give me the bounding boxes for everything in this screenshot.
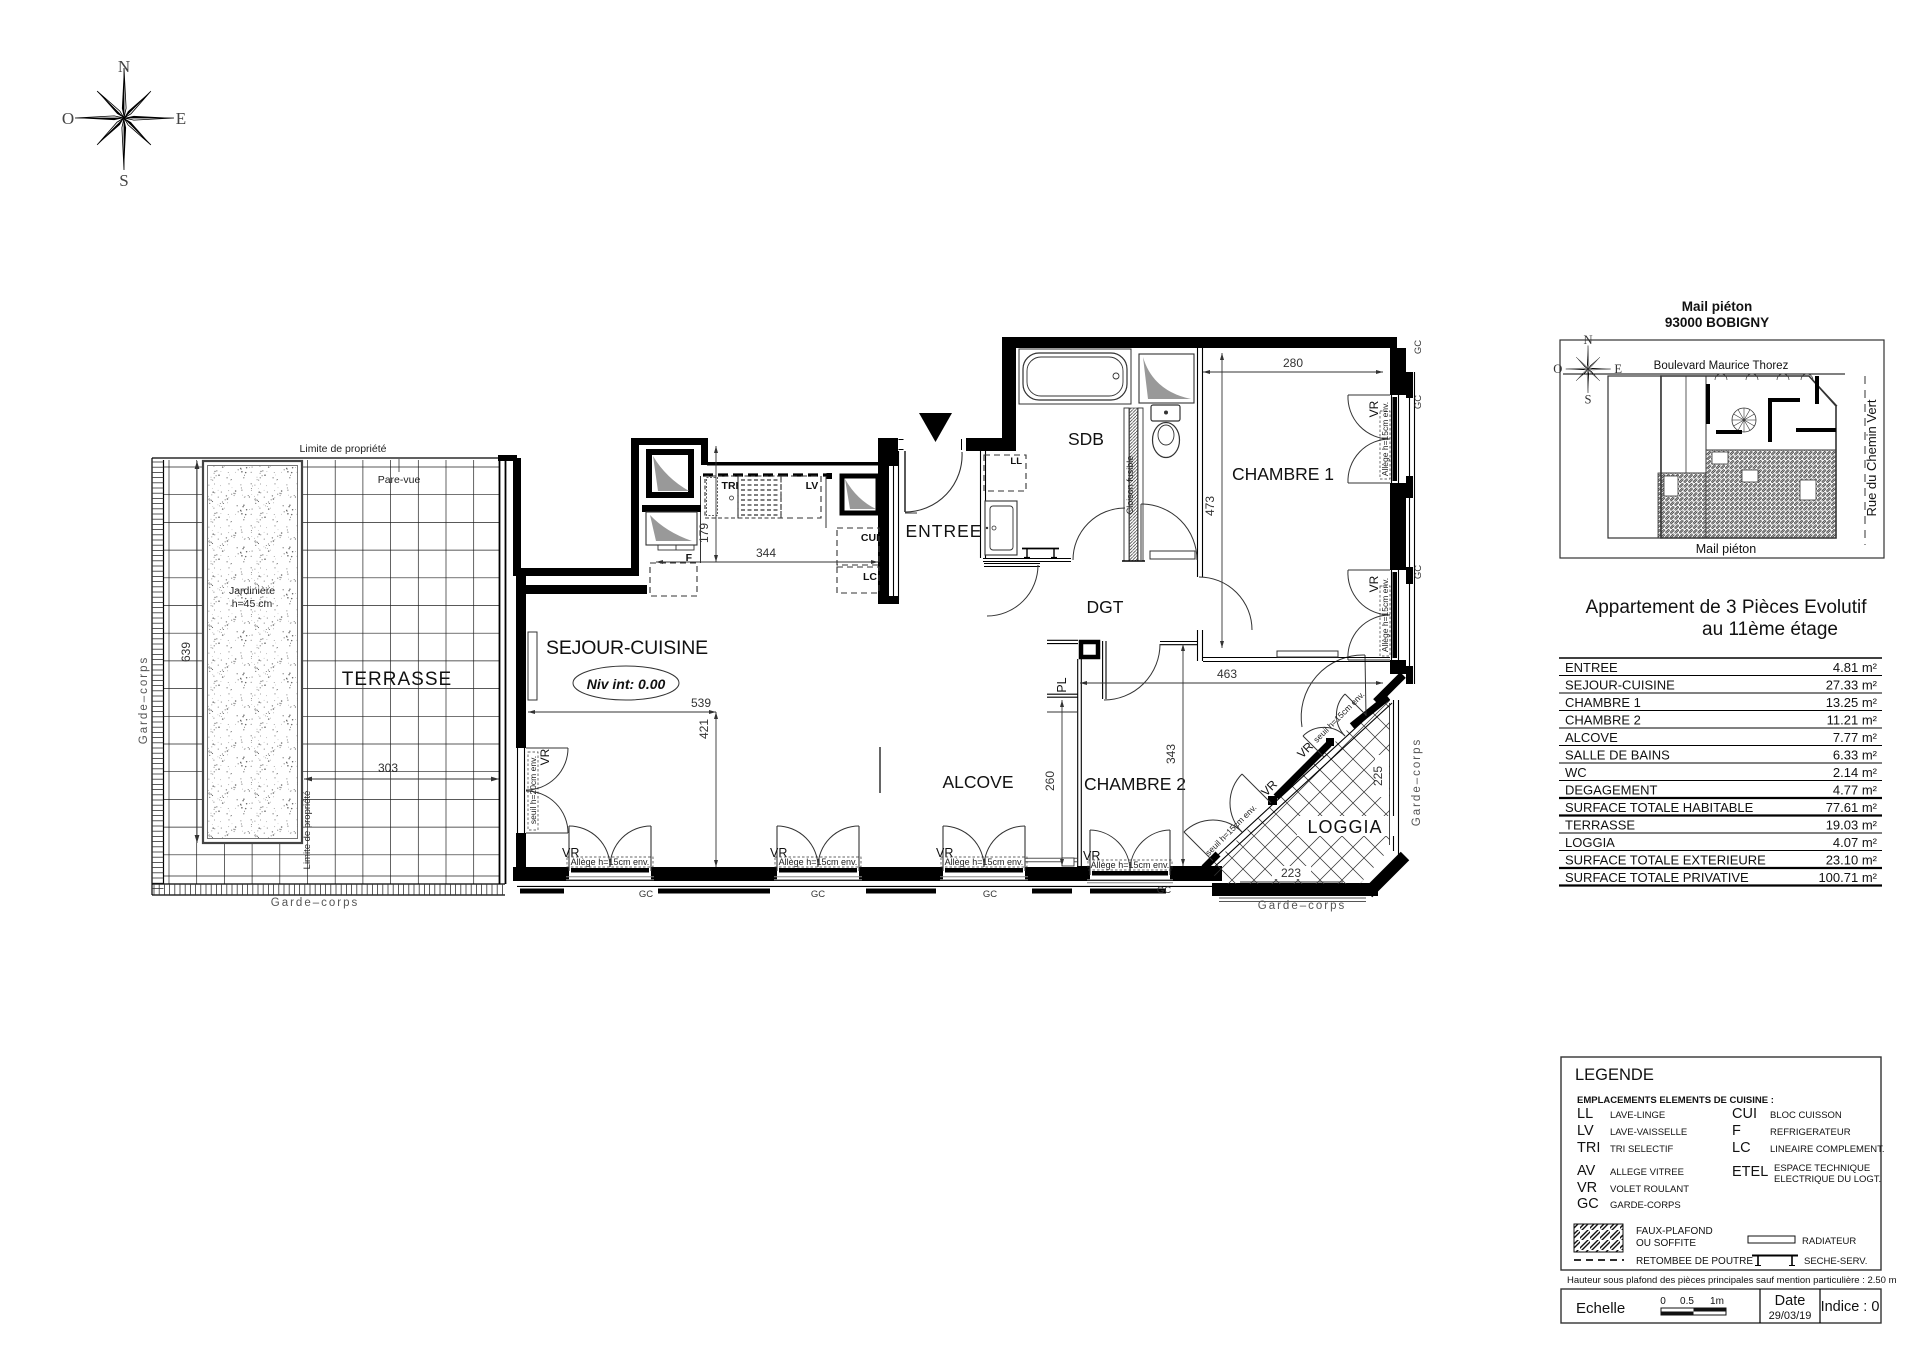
- svg-text:SURFACE TOTALE EXTERIEURE: SURFACE TOTALE EXTERIEURE: [1565, 852, 1766, 867]
- svg-text:421: 421: [697, 719, 711, 739]
- svg-text:11.21 m²: 11.21 m²: [1827, 712, 1878, 727]
- svg-text:E: E: [176, 109, 186, 128]
- svg-text:Echelle: Echelle: [1576, 1300, 1625, 1317]
- svg-text:ETEL: ETEL: [1732, 1164, 1768, 1180]
- svg-text:343: 343: [1164, 744, 1178, 764]
- svg-text:WC: WC: [1565, 765, 1587, 780]
- svg-text:27.33 m²: 27.33 m²: [1826, 677, 1878, 692]
- svg-text:0: 0: [1660, 1296, 1666, 1307]
- svg-text:LINEAIRE COMPLEMENT.: LINEAIRE COMPLEMENT.: [1770, 1144, 1885, 1155]
- svg-text:SEJOUR-CUISINE: SEJOUR-CUISINE: [546, 637, 708, 659]
- svg-text:PL: PL: [1055, 677, 1069, 692]
- svg-text:LL: LL: [1577, 1106, 1593, 1122]
- svg-text:GC: GC: [983, 889, 997, 900]
- svg-text:GC: GC: [1577, 1196, 1599, 1212]
- svg-text:Hauteur sous plafond des pièce: Hauteur sous plafond des pièces principa…: [1567, 1275, 1897, 1286]
- svg-text:OU SOFFITE: OU SOFFITE: [1636, 1238, 1696, 1249]
- svg-text:h=45 cm: h=45 cm: [232, 598, 273, 610]
- svg-text:29/03/19: 29/03/19: [1769, 1310, 1812, 1322]
- svg-text:Boulevard Maurice Thorez: Boulevard Maurice Thorez: [1654, 360, 1789, 372]
- svg-text:SDB: SDB: [1068, 429, 1104, 449]
- svg-text:au 11ème étage: au 11ème étage: [1702, 619, 1838, 640]
- svg-text:ESPACE TECHNIQUE: ESPACE TECHNIQUE: [1774, 1163, 1870, 1174]
- svg-text:223: 223: [1281, 866, 1301, 880]
- svg-text:260: 260: [1043, 771, 1057, 791]
- svg-text:2.14 m²: 2.14 m²: [1833, 765, 1878, 780]
- svg-text:Mail piéton: Mail piéton: [1696, 542, 1756, 556]
- svg-text:ENTREE: ENTREE: [1565, 660, 1618, 675]
- svg-text:473: 473: [1203, 496, 1217, 516]
- svg-text:TERRASSE: TERRASSE: [1565, 817, 1635, 832]
- svg-text:Limite de propriété: Limite de propriété: [302, 791, 313, 870]
- svg-text:13.25 m²: 13.25 m²: [1826, 695, 1878, 710]
- svg-text:TRI SELECTIF: TRI SELECTIF: [1610, 1144, 1674, 1155]
- svg-text:Allège h=15cm env.: Allège h=15cm env.: [779, 857, 858, 867]
- svg-text:S: S: [1584, 392, 1591, 406]
- svg-text:Allège h=15cm env.: Allège h=15cm env.: [1091, 860, 1170, 870]
- svg-text:VR: VR: [1577, 1180, 1597, 1196]
- svg-text:SECHE-SERV.: SECHE-SERV.: [1804, 1256, 1867, 1267]
- svg-text:VR: VR: [1367, 400, 1381, 417]
- svg-text:Cloison fusible: Cloison fusible: [1125, 456, 1135, 515]
- svg-text:Garde–corps: Garde–corps: [138, 656, 150, 744]
- svg-text:Garde–corps: Garde–corps: [1258, 900, 1346, 912]
- svg-text:ELECTRIQUE DU LOGT.: ELECTRIQUE DU LOGT.: [1774, 1174, 1881, 1185]
- svg-text:225: 225: [1371, 766, 1385, 786]
- svg-text:4.81 m²: 4.81 m²: [1833, 660, 1878, 675]
- svg-text:VR: VR: [538, 748, 552, 765]
- svg-text:O: O: [1553, 362, 1562, 376]
- svg-text:Rue du Chemin Vert: Rue du Chemin Vert: [1864, 399, 1879, 516]
- svg-text:77.61 m²: 77.61 m²: [1826, 800, 1878, 815]
- svg-text:N: N: [1583, 333, 1592, 347]
- svg-text:639: 639: [179, 642, 193, 662]
- svg-text:S: S: [119, 171, 128, 190]
- svg-text:4.07 m²: 4.07 m²: [1833, 835, 1878, 850]
- svg-text:O: O: [62, 109, 74, 128]
- svg-text:LEGENDE: LEGENDE: [1575, 1066, 1654, 1084]
- svg-text:seuil h=20cm env.: seuil h=20cm env.: [528, 756, 538, 824]
- svg-text:GC: GC: [1157, 885, 1171, 896]
- svg-text:303: 303: [378, 761, 398, 775]
- svg-text:VR: VR: [1367, 575, 1381, 592]
- svg-text:RADIATEUR: RADIATEUR: [1802, 1236, 1856, 1247]
- svg-text:GC: GC: [1413, 565, 1424, 579]
- svg-text:REFRIGERATEUR: REFRIGERATEUR: [1770, 1127, 1851, 1138]
- svg-text:ALCOVE: ALCOVE: [1565, 730, 1618, 745]
- svg-text:N: N: [118, 57, 130, 76]
- svg-text:LOGGIA: LOGGIA: [1565, 835, 1615, 850]
- svg-text:Appartement de 3 Pièces Evolut: Appartement de 3 Pièces Evolutif: [1586, 597, 1868, 618]
- svg-text:ALLEGE VITREE: ALLEGE VITREE: [1610, 1167, 1684, 1178]
- svg-text:GARDE-CORPS: GARDE-CORPS: [1610, 1200, 1681, 1211]
- svg-text:19.03 m²: 19.03 m²: [1826, 817, 1878, 832]
- svg-text:Jardinière: Jardinière: [229, 585, 275, 597]
- svg-text:LC: LC: [863, 571, 877, 583]
- svg-text:CHAMBRE 2: CHAMBRE 2: [1084, 774, 1186, 794]
- svg-text:100.71 m²: 100.71 m²: [1818, 870, 1877, 885]
- svg-text:179: 179: [697, 523, 711, 543]
- svg-text:CUI: CUI: [861, 532, 879, 544]
- svg-text:LAVE-VAISSELLE: LAVE-VAISSELLE: [1610, 1127, 1687, 1138]
- svg-text:Limite de propriété: Limite de propriété: [300, 443, 387, 455]
- svg-text:LAVE-LINGE: LAVE-LINGE: [1610, 1110, 1665, 1121]
- svg-text:CHAMBRE 2: CHAMBRE 2: [1565, 712, 1641, 727]
- svg-text:AV: AV: [1577, 1163, 1596, 1179]
- svg-text:CHAMBRE 1: CHAMBRE 1: [1565, 695, 1641, 710]
- svg-text:4.77 m²: 4.77 m²: [1833, 782, 1878, 797]
- svg-text:VOLET ROULANT: VOLET ROULANT: [1610, 1184, 1689, 1195]
- svg-text:6.33 m²: 6.33 m²: [1833, 747, 1878, 762]
- svg-text:Indice : 0: Indice : 0: [1821, 1299, 1880, 1315]
- svg-text:Niv int: 0.00: Niv int: 0.00: [587, 676, 666, 692]
- svg-text:Garde–corps: Garde–corps: [271, 897, 359, 909]
- svg-text:GC: GC: [1413, 395, 1424, 409]
- svg-text:LV: LV: [806, 480, 819, 492]
- svg-text:Garde–corps: Garde–corps: [1411, 738, 1423, 826]
- svg-text:Allège h=15cm env.: Allège h=15cm env.: [1380, 402, 1390, 476]
- svg-text:TRI: TRI: [722, 480, 739, 492]
- svg-text:0.5: 0.5: [1680, 1296, 1694, 1307]
- svg-text:LL: LL: [1010, 456, 1022, 467]
- svg-text:Date: Date: [1775, 1293, 1806, 1309]
- svg-text:93000 BOBIGNY: 93000 BOBIGNY: [1665, 315, 1769, 330]
- svg-text:344: 344: [756, 546, 776, 560]
- svg-text:GC: GC: [639, 889, 653, 900]
- svg-text:BLOC CUISSON: BLOC CUISSON: [1770, 1110, 1842, 1121]
- svg-text:GC: GC: [1413, 340, 1424, 354]
- svg-text:LC: LC: [1732, 1140, 1751, 1156]
- svg-text:CHAMBRE 1: CHAMBRE 1: [1232, 464, 1334, 484]
- svg-text:463: 463: [1217, 667, 1237, 681]
- svg-text:Allège h=15cm env.: Allège h=15cm env.: [945, 857, 1024, 867]
- svg-text:7.77 m²: 7.77 m²: [1833, 730, 1878, 745]
- svg-text:FAUX-PLAFOND: FAUX-PLAFOND: [1636, 1226, 1713, 1237]
- svg-text:Mail piéton: Mail piéton: [1682, 299, 1753, 314]
- svg-text:Pare-vue: Pare-vue: [378, 474, 421, 486]
- svg-text:1m: 1m: [1710, 1296, 1724, 1307]
- svg-text:23.10 m²: 23.10 m²: [1826, 852, 1878, 867]
- svg-text:DEGAGEMENT: DEGAGEMENT: [1565, 782, 1658, 797]
- svg-text:F: F: [1732, 1123, 1741, 1139]
- svg-text:Allège h=15cm env.: Allège h=15cm env.: [1380, 578, 1390, 652]
- svg-text:SALLE DE BAINS: SALLE DE BAINS: [1565, 747, 1670, 762]
- svg-text:CUI: CUI: [1732, 1106, 1757, 1122]
- svg-text:SURFACE TOTALE HABITABLE: SURFACE TOTALE HABITABLE: [1565, 800, 1754, 815]
- svg-text:TERRASSE: TERRASSE: [342, 669, 452, 690]
- svg-text:EMPLACEMENTS ELEMENTS DE CUISI: EMPLACEMENTS ELEMENTS DE CUISINE :: [1577, 1095, 1774, 1106]
- svg-text:280: 280: [1283, 356, 1303, 370]
- svg-text:RETOMBEE DE POUTRE: RETOMBEE DE POUTRE: [1636, 1256, 1753, 1267]
- svg-text:LV: LV: [1577, 1123, 1594, 1139]
- svg-text:ALCOVE: ALCOVE: [943, 772, 1014, 792]
- svg-text:539: 539: [691, 696, 711, 710]
- svg-text:GC: GC: [811, 889, 825, 900]
- svg-text:SURFACE TOTALE PRIVATIVE: SURFACE TOTALE PRIVATIVE: [1565, 870, 1749, 885]
- svg-text:ENTREE: ENTREE: [906, 521, 983, 541]
- svg-text:TRI: TRI: [1577, 1140, 1600, 1156]
- svg-text:Allège h=15cm env.: Allège h=15cm env.: [571, 857, 650, 867]
- svg-text:LOGGIA: LOGGIA: [1307, 817, 1382, 837]
- svg-text:SEJOUR-CUISINE: SEJOUR-CUISINE: [1565, 677, 1675, 692]
- svg-text:DGT: DGT: [1087, 597, 1124, 617]
